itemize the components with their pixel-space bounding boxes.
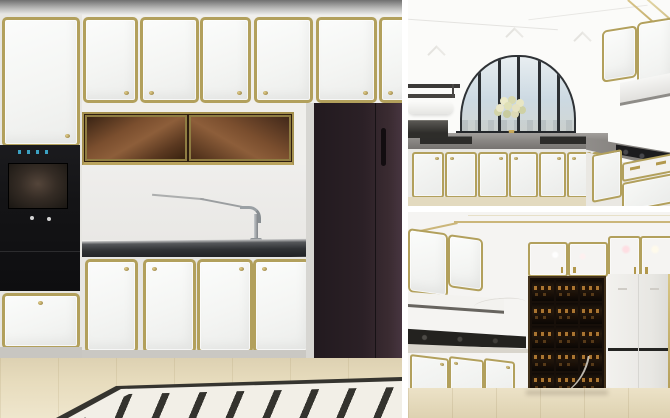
wine-compartment bbox=[556, 303, 578, 324]
door-knob bbox=[124, 91, 129, 95]
cabinet-door bbox=[83, 17, 138, 103]
oven-display bbox=[18, 150, 50, 154]
cabinet-door bbox=[408, 228, 448, 298]
window-mullion bbox=[538, 57, 541, 135]
wine-compartment bbox=[556, 280, 578, 301]
flower-bouquet bbox=[496, 104, 504, 112]
wine-compartment bbox=[556, 326, 578, 347]
towel-roll bbox=[408, 101, 453, 114]
ceiling-gold-trim bbox=[454, 221, 670, 223]
door-knob bbox=[514, 157, 518, 160]
door-knob bbox=[499, 157, 503, 160]
cabinet-door bbox=[254, 17, 313, 103]
panel-left-kitchen bbox=[0, 0, 402, 418]
backsplash bbox=[82, 165, 314, 240]
door-knob bbox=[454, 362, 458, 365]
cabinet-door bbox=[592, 149, 622, 203]
floor bbox=[408, 388, 670, 418]
cabinet-door bbox=[445, 152, 477, 198]
glass-cabinet-door bbox=[528, 242, 568, 277]
door-knob bbox=[65, 134, 70, 138]
bronze-glass-cabinet bbox=[82, 112, 294, 167]
door-knob bbox=[450, 157, 454, 160]
floor-reflection bbox=[526, 390, 608, 395]
door-knob bbox=[363, 91, 368, 95]
ceiling-shadow bbox=[0, 0, 402, 15]
bronze-glass-door bbox=[85, 115, 187, 161]
ceiling-line bbox=[528, 5, 647, 21]
cabinet-door bbox=[412, 152, 444, 198]
drawer-handle bbox=[630, 166, 640, 170]
cabinet-door bbox=[509, 152, 538, 198]
refrigerator bbox=[314, 103, 402, 358]
door-knob bbox=[440, 363, 444, 366]
white-fridge-unit bbox=[608, 274, 670, 406]
glass-cabinet-door bbox=[608, 236, 641, 278]
window-mullion bbox=[498, 57, 501, 135]
open-shelf bbox=[408, 94, 455, 98]
arched-window bbox=[460, 55, 576, 135]
door-knob bbox=[262, 267, 267, 271]
unit-seam bbox=[638, 274, 639, 406]
panel-bottom-right-kitchen bbox=[408, 212, 670, 418]
door-knob bbox=[237, 91, 242, 95]
marble-vein bbox=[505, 27, 523, 45]
oven-seam bbox=[0, 251, 80, 252]
cabinet-door bbox=[197, 259, 253, 353]
cabinet-door bbox=[140, 17, 199, 103]
cabinet-door bbox=[316, 17, 377, 103]
drawer-handle bbox=[656, 161, 666, 165]
glass-cabinet-door bbox=[568, 242, 608, 277]
door-handle bbox=[634, 267, 637, 274]
wine-compartment bbox=[532, 303, 554, 324]
cabinet-door bbox=[379, 17, 402, 103]
cabinet-door bbox=[85, 259, 138, 353]
door-knob bbox=[557, 157, 561, 160]
floor bbox=[408, 197, 608, 206]
kitchen-render-collage bbox=[0, 0, 670, 418]
bronze-glass-door bbox=[189, 115, 291, 161]
cabinet-door bbox=[253, 259, 310, 353]
countertop-grill bbox=[408, 120, 448, 138]
window-mullion bbox=[557, 57, 560, 135]
fridge-door-seam bbox=[375, 103, 376, 358]
built-in-oven bbox=[0, 145, 80, 291]
cabinet-door bbox=[539, 152, 566, 198]
oven-window bbox=[8, 163, 68, 209]
window-mullion bbox=[478, 57, 481, 135]
door-knob bbox=[149, 91, 154, 95]
unit-handle bbox=[618, 288, 627, 290]
door-knob bbox=[506, 366, 510, 369]
marble-vein bbox=[573, 31, 591, 49]
wine-compartment bbox=[532, 280, 554, 301]
door-knob bbox=[124, 267, 129, 271]
wine-compartment bbox=[580, 326, 602, 347]
cabinet-door bbox=[200, 17, 251, 103]
sink bbox=[540, 136, 586, 144]
unit-handle-groove bbox=[608, 348, 670, 351]
door-knob bbox=[38, 301, 43, 305]
door-knob bbox=[572, 157, 576, 160]
door-knob bbox=[263, 91, 268, 95]
cabinet-door bbox=[478, 152, 508, 198]
ceiling-line bbox=[408, 19, 558, 30]
door-knob bbox=[239, 267, 244, 271]
cabinet-door bbox=[448, 234, 483, 292]
faucet bbox=[238, 206, 264, 242]
wine-compartment bbox=[532, 326, 554, 347]
fridge-side-panel bbox=[306, 103, 314, 358]
door-knob bbox=[152, 267, 157, 271]
door-handle bbox=[573, 267, 576, 273]
wine-compartment bbox=[580, 280, 602, 301]
panel-top-right-kitchen bbox=[408, 0, 670, 206]
door-handle bbox=[561, 267, 564, 273]
ceiling-line bbox=[468, 215, 670, 216]
glass-cabinet-door bbox=[640, 236, 670, 278]
door-handle bbox=[645, 267, 648, 274]
fridge-handle bbox=[381, 128, 386, 166]
oven-knob bbox=[47, 217, 51, 221]
wine-compartment bbox=[580, 303, 602, 324]
faucet-body bbox=[254, 214, 258, 240]
cabinet-door bbox=[143, 259, 196, 353]
cabinet-door bbox=[2, 293, 80, 349]
cabinet-door bbox=[2, 17, 80, 147]
cabinet-door bbox=[602, 25, 637, 83]
marble-vein bbox=[427, 45, 445, 63]
door-knob bbox=[435, 157, 439, 160]
unit-handle bbox=[650, 288, 659, 290]
oven-knob bbox=[30, 216, 34, 220]
shelf-bracket bbox=[452, 84, 454, 98]
door-knob bbox=[388, 91, 393, 95]
window-mullion bbox=[517, 57, 520, 135]
